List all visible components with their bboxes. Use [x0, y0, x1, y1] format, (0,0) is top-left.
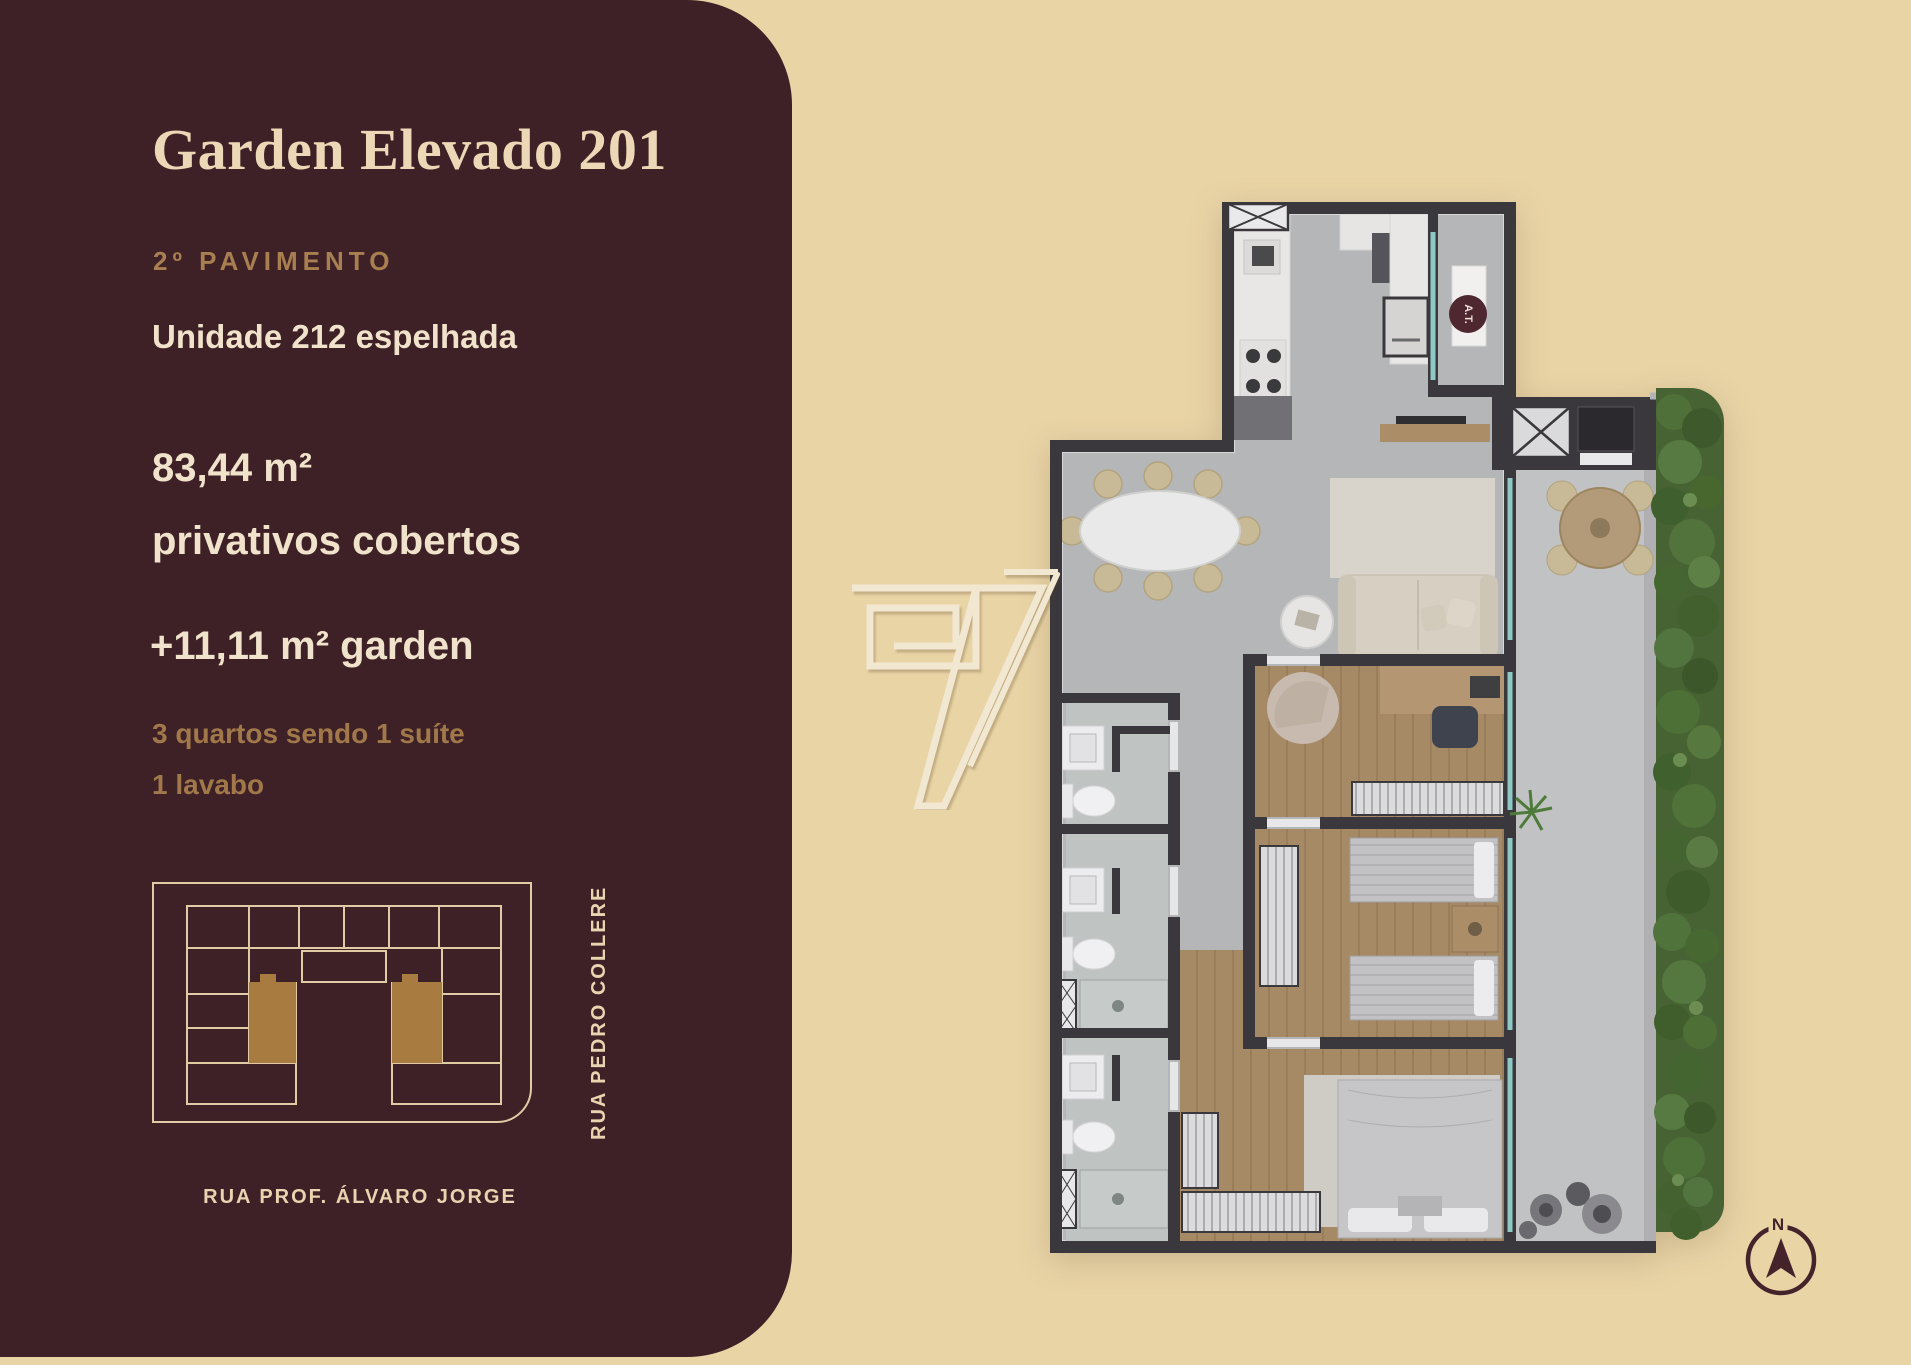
compass-north-icon: N [1738, 1210, 1824, 1300]
brand-watermark-7-icon [846, 566, 1060, 810]
features-bedrooms: 3 quartos sendo 1 suíte [152, 718, 465, 750]
street-label-bottom: RUA PROF. ÁLVARO JORGE [150, 1186, 570, 1209]
street-label-right: RUA PEDRO COLLERE [588, 888, 611, 1140]
kitchen-oven [1384, 298, 1428, 356]
site-map-frame [153, 883, 531, 1122]
tv [1396, 416, 1466, 424]
terrace-curb [1644, 470, 1656, 1241]
features-lavabo: 1 lavabo [152, 769, 264, 801]
floor-label: 2º PAVIMENTO [153, 246, 394, 277]
tv-console [1380, 424, 1490, 442]
sofa [1338, 575, 1498, 657]
garden-area-value: +11,11 m² garden [150, 624, 474, 669]
info-panel: Garden Elevado 201 2º PAVIMENTO Unidade … [0, 0, 792, 1357]
north-arrow [1766, 1238, 1796, 1278]
technical-area-label: A.T. [1462, 304, 1474, 324]
compass-n-label: N [1772, 1215, 1784, 1234]
highlighted-unit [249, 974, 442, 1063]
page-title: Garden Elevado 201 [152, 116, 667, 183]
brochure-page: Garden Elevado 201 2º PAVIMENTO Unidade … [0, 0, 1911, 1365]
private-area-caption: privativos cobertos [152, 519, 521, 564]
site-map-diagram [140, 876, 610, 1128]
floor-plan: A.T. [1040, 180, 1740, 1260]
terrace-floor [1510, 470, 1644, 1241]
living-rug [1330, 478, 1495, 578]
kitchen-cabinet [1234, 396, 1292, 440]
private-area-value: 83,44 m² [152, 446, 312, 491]
terrace-dining-set [1547, 481, 1653, 575]
stair-box [1578, 407, 1634, 451]
unit-label: Unidade 212 espelhada [152, 318, 517, 356]
